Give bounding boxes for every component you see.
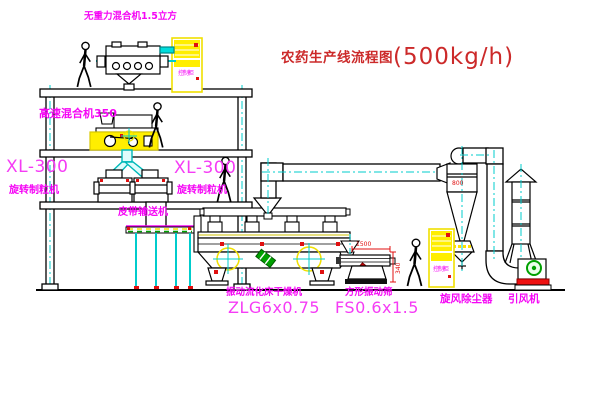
induced-draft-fan (515, 259, 551, 290)
indicator-dot (194, 43, 198, 47)
mixer-discharge-cone (117, 74, 141, 84)
label-granulator-right-name: 旋转制粒机 (177, 186, 227, 196)
label-granulator-right-model: XL-300 (174, 160, 236, 177)
exhaust-stack (505, 164, 537, 266)
indicator-dot (448, 275, 451, 278)
conveyor-legs (136, 233, 190, 287)
indicator-dot (127, 227, 130, 230)
label-sieve-name: 方形振动筛 (345, 288, 393, 298)
dryer-supports (206, 268, 334, 285)
gravity-mixer (96, 42, 176, 90)
cabinet-right-label: 控制柜 (433, 267, 448, 273)
label-high-speed-mixer: 高速混合机350 (39, 108, 117, 119)
page-title: 农药生产线流程图 (500kg/h) (281, 44, 514, 70)
label-sieve-model: FS0.6x1.5 (335, 300, 419, 316)
label-belt-conveyor: 皮带输送机 (118, 208, 168, 218)
control-cabinet-top (172, 38, 202, 92)
title-capacity: (500kg/h) (393, 44, 514, 70)
label-granulator-left-model: XL-300 (6, 159, 68, 176)
label-dryer-name: 振动流化床干燥机 (226, 288, 302, 298)
indicator-dot (136, 179, 139, 182)
label-dryer-model: ZLG6x0.75 (228, 300, 320, 316)
diagram-canvas: 无重力混合机1.5立方 农药生产线流程图 (500kg/h) 高速混合机350 … (0, 0, 600, 403)
indicator-dot (126, 179, 129, 182)
title-text: 农药生产线流程图 (281, 46, 393, 70)
granulator-right (130, 170, 172, 202)
label-granulator-left-name: 旋转制粒机 (9, 186, 59, 196)
indicator-dot (196, 77, 199, 80)
indicator-dot (446, 233, 450, 237)
person-1 (77, 42, 90, 87)
label-cyclone: 旋风除尘器 (440, 294, 493, 305)
dim-sieve-height: 340 (396, 263, 402, 274)
indicator-dot (100, 179, 103, 182)
control-cabinet-right (429, 229, 454, 287)
label-fan: 引风机 (508, 294, 540, 305)
dim-cyclone: 800 (452, 181, 463, 187)
mixer-outlet-pipe (160, 47, 174, 53)
floor-slab-mid (40, 150, 252, 157)
dim-sieve-length: 1500 (356, 242, 371, 248)
indicator-dot (188, 227, 191, 230)
label-gravity-mixer: 无重力混合机1.5立方 (84, 12, 177, 22)
fluid-bed-dryer (194, 208, 354, 285)
cabinet-top-label: 控制柜 (178, 71, 193, 77)
person-4 (408, 239, 422, 286)
floor-slab-top (40, 89, 252, 97)
indicator-dot (162, 179, 165, 182)
